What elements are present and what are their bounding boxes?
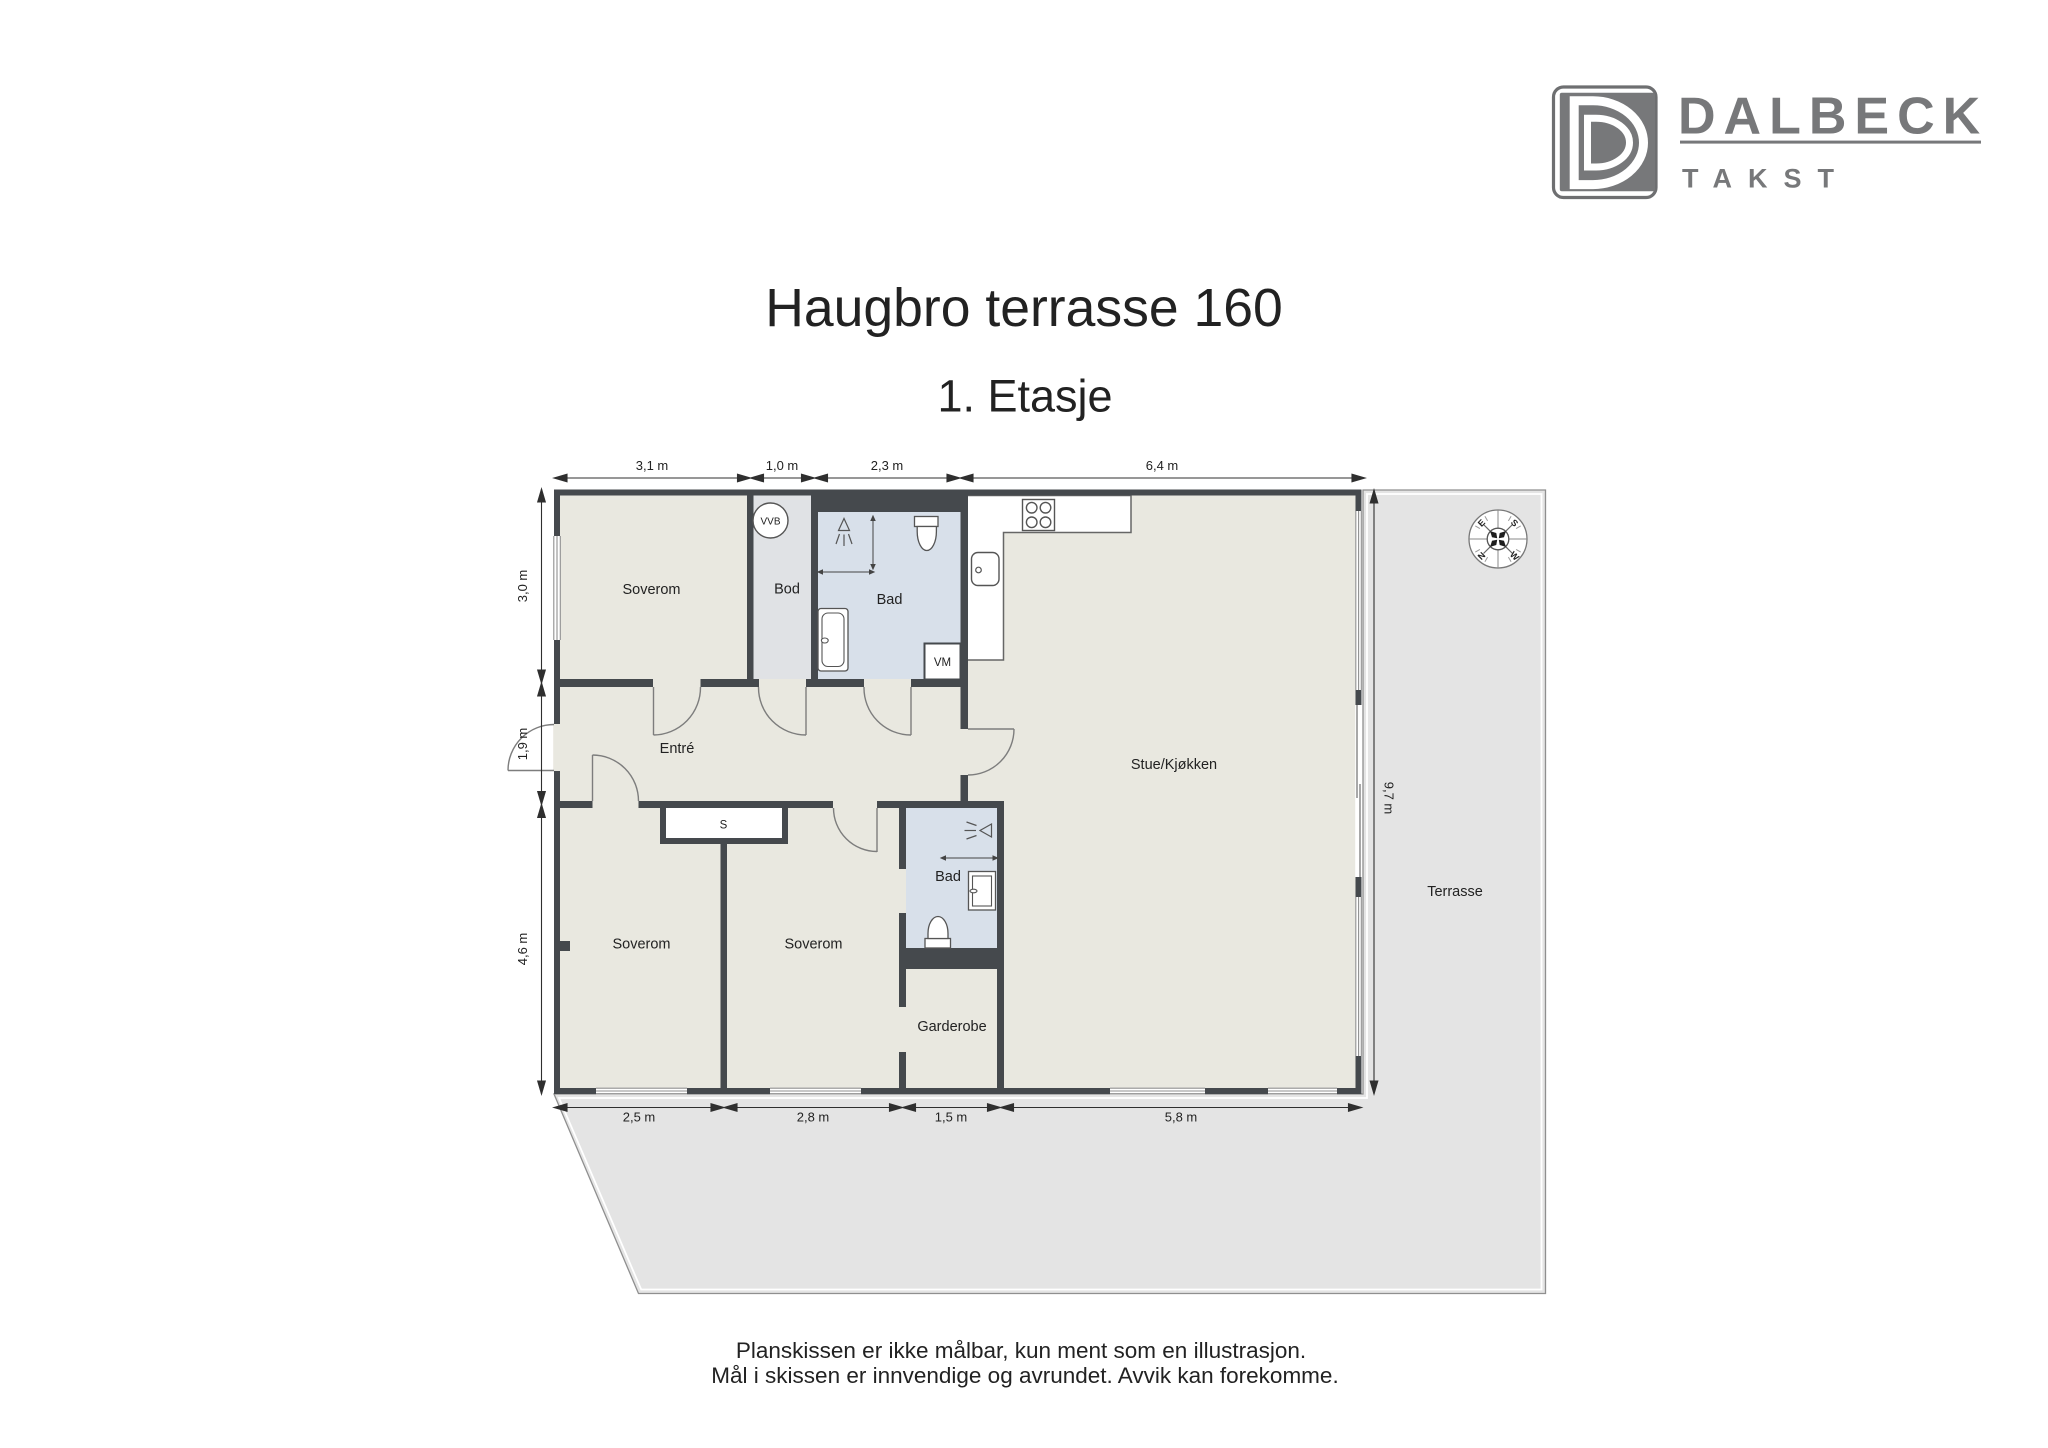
svg-text:1,5 m: 1,5 m — [935, 1110, 968, 1125]
svg-text:Stue/Kjøkken: Stue/Kjøkken — [1131, 757, 1217, 773]
svg-text:Mål i skissen er innvendige og: Mål i skissen er innvendige og avrundet.… — [711, 1363, 1338, 1388]
svg-text:S: S — [720, 820, 728, 832]
svg-text:Bad: Bad — [935, 869, 961, 885]
svg-text:VVB: VVB — [760, 517, 780, 528]
svg-text:4,6 m: 4,6 m — [515, 933, 530, 966]
svg-text:2,5 m: 2,5 m — [623, 1110, 656, 1125]
svg-text:TAKST: TAKST — [1682, 164, 1850, 194]
svg-text:Planskissen er ikke målbar, ku: Planskissen er ikke målbar, kun ment som… — [736, 1338, 1306, 1363]
svg-text:Soverom: Soverom — [612, 937, 670, 953]
svg-text:5,8 m: 5,8 m — [1165, 1110, 1198, 1125]
svg-text:1,0 m: 1,0 m — [766, 458, 799, 473]
svg-text:Entré: Entré — [660, 741, 695, 757]
svg-text:Soverom: Soverom — [622, 582, 680, 598]
svg-text:Soverom: Soverom — [784, 937, 842, 953]
svg-text:9,7 m: 9,7 m — [1382, 782, 1397, 815]
svg-text:2,8 m: 2,8 m — [797, 1110, 830, 1125]
svg-text:Garderobe: Garderobe — [917, 1019, 986, 1035]
svg-text:1. Etasje: 1. Etasje — [937, 371, 1112, 422]
svg-text:6,4 m: 6,4 m — [1146, 458, 1179, 473]
svg-text:3,0 m: 3,0 m — [515, 570, 530, 603]
svg-text:1,9 m: 1,9 m — [515, 728, 530, 761]
svg-text:Bod: Bod — [774, 582, 800, 598]
svg-text:VM: VM — [934, 657, 951, 669]
svg-text:Haugbro terrasse 160: Haugbro terrasse 160 — [765, 279, 1282, 338]
svg-text:Terrasse: Terrasse — [1427, 884, 1483, 900]
svg-text:2,3 m: 2,3 m — [871, 458, 904, 473]
svg-text:3,1 m: 3,1 m — [636, 458, 669, 473]
svg-text:Bad: Bad — [877, 592, 903, 608]
svg-text:DALBECK: DALBECK — [1678, 88, 1988, 146]
